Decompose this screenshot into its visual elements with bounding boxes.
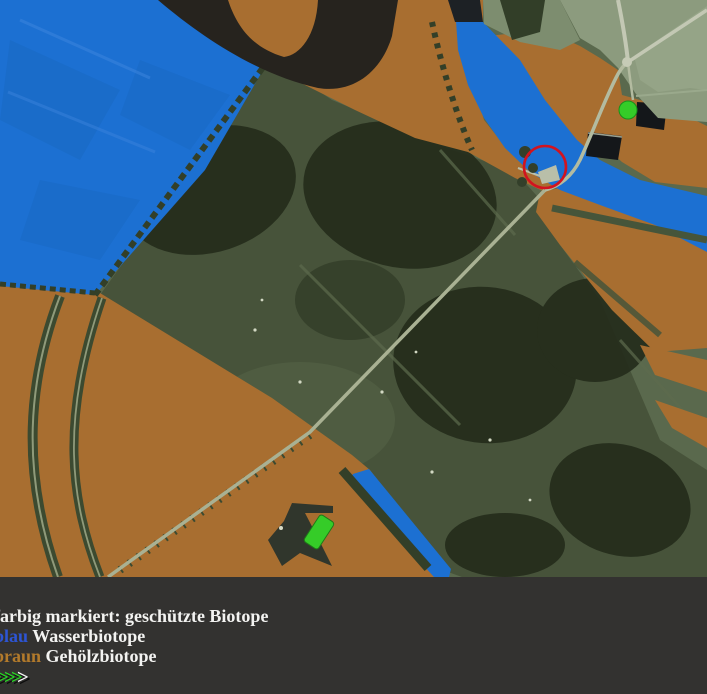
legend-water-label: Wasserbiotope [32,626,145,646]
legend-water-color-word: blau [0,626,28,646]
green-arrows: >>>> [0,665,18,689]
road-junction [622,57,632,67]
green-dot-marker [619,101,637,119]
white-arrow: > [17,665,29,689]
scrub-speck [279,526,283,530]
legend-wood-color-word: braun [0,646,41,666]
aerial-map-svg [0,0,707,577]
legend-wood-label: Gehölzbiotope [46,646,157,666]
legend-water-row: blau Wasserbiotope [0,626,707,646]
page: farbig markiert: geschützte Biotope blau… [0,0,707,694]
legend-title: farbig markiert: geschützte Biotope [0,606,707,626]
legend-wood-row: braun Gehölzbiotope [0,646,707,666]
aerial-map [0,0,707,577]
legend-title-text: farbig markiert: geschützte Biotope [0,606,268,626]
next-page-arrows[interactable]: >>>>> [0,667,29,687]
legend-panel: farbig markiert: geschützte Biotope blau… [0,577,707,694]
